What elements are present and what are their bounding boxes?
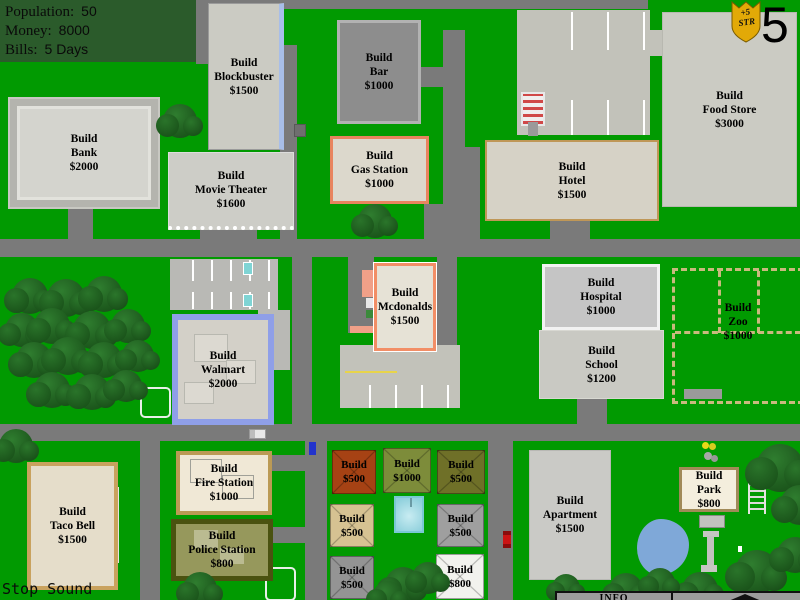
build-house-5-label: Build $500: [448, 512, 474, 540]
white-truck: [249, 429, 266, 439]
cart-return-icon: [243, 262, 253, 275]
trash-can-icon: [738, 546, 742, 552]
tree: [183, 572, 217, 600]
money-label: Money:: [5, 23, 52, 40]
red-car: [503, 531, 511, 548]
build-hospital-button[interactable]: Build Hospital $1000: [542, 264, 660, 330]
parking-lines: [175, 260, 275, 281]
stone-icon: [711, 455, 718, 462]
build-bar-button[interactable]: Build Bar $1000: [337, 20, 421, 124]
info-bar: INFO: [555, 591, 800, 600]
blue-car: [309, 442, 316, 455]
build-bank-button[interactable]: Build Bank $2000: [8, 97, 160, 209]
build-house-7-label: Build $800: [447, 563, 473, 591]
build-house-6-label: Build $500: [339, 564, 365, 592]
road: [437, 257, 457, 349]
money-value: 8000: [59, 22, 90, 38]
parking-lines: [175, 292, 275, 309]
road: [424, 204, 443, 240]
parking-lines: [345, 385, 455, 408]
bills-label: Bills:: [5, 42, 38, 59]
bills-value: 5 Days: [45, 41, 89, 57]
tree: [412, 562, 444, 594]
cart-return-icon: [243, 294, 253, 307]
seesaw-post: [707, 536, 714, 567]
build-food-store-label: Build Food Store $3000: [703, 89, 757, 131]
build-mcdonalds-label: Build Mcdonalds $1500: [378, 286, 432, 328]
build-taco-bell-label: Build Taco Bell $1500: [50, 505, 95, 547]
flower-icon: [702, 442, 709, 449]
mcdonalds-menu-board: [366, 298, 374, 308]
expand-panel-button[interactable]: [673, 593, 800, 600]
info-button[interactable]: INFO: [557, 593, 673, 600]
build-police-station-button[interactable]: Build Police Station $800: [171, 519, 273, 581]
build-school-button[interactable]: Build School $1200: [539, 330, 664, 399]
park-bench: [699, 515, 725, 528]
day-counter: 5: [761, 0, 789, 50]
road: [305, 441, 327, 600]
build-mcdonalds-button[interactable]: Build Mcdonalds $1500: [374, 263, 436, 351]
road: [450, 147, 480, 240]
population-value: 50: [81, 3, 97, 19]
road: [0, 239, 800, 257]
road: [577, 397, 607, 425]
build-house-5-button[interactable]: Build $500: [437, 504, 484, 547]
build-gas-station-label: Build Gas Station $1000: [351, 149, 408, 191]
dumpster: [294, 124, 306, 137]
build-park-button[interactable]: Build Park $800: [679, 467, 739, 512]
build-house-2-button[interactable]: Build $1000: [383, 448, 431, 493]
tree: [358, 204, 392, 238]
build-walmart-label: Build Walmart $2000: [201, 349, 245, 391]
build-school-label: Build School $1200: [585, 344, 618, 386]
build-house-3-button[interactable]: Build $500: [437, 450, 485, 494]
hotel-parking-sign: [521, 92, 545, 126]
build-movie-theater-label: Build Movie Theater $1600: [195, 169, 267, 211]
build-apartment-label: Build Apartment $1500: [543, 494, 597, 536]
parking-lines: [537, 12, 649, 50]
tree: [110, 370, 142, 402]
parking-connector: [648, 30, 662, 56]
build-house-3-label: Build $500: [448, 458, 474, 486]
build-house-1-button[interactable]: Build $500: [332, 450, 376, 494]
diving-board: [410, 498, 412, 507]
build-house-1-label: Build $500: [341, 458, 367, 486]
money-row: Money: 8000: [5, 22, 196, 41]
tree: [0, 429, 33, 463]
build-blockbuster-label: Build Blockbuster $1500: [214, 56, 273, 98]
road: [68, 205, 93, 241]
build-apartment-button[interactable]: Build Apartment $1500: [529, 450, 611, 580]
build-movie-theater-button[interactable]: Build Movie Theater $1600: [168, 152, 294, 230]
road: [140, 441, 160, 600]
bills-row: Bills: 5 Days: [5, 41, 196, 60]
tree: [122, 340, 154, 372]
tree: [756, 444, 800, 492]
build-bar-label: Build Bar $1000: [365, 51, 394, 93]
game-map: Build Blockbuster $1500 Build Bank $2000…: [0, 0, 800, 600]
swimming-pool: [394, 496, 424, 533]
stats-panel: Population: 50 Money: 8000 Bills: 5 Days: [0, 0, 196, 62]
build-house-2-label: Build $1000: [393, 457, 421, 485]
hotel-parking-sign-post: [528, 122, 538, 136]
road: [292, 257, 312, 425]
build-hotel-label: Build Hotel $1500: [558, 160, 587, 202]
build-bank-label: Build Bank $2000: [70, 132, 99, 174]
population-row: Population: 50: [5, 3, 196, 22]
build-police-station-label: Build Police Station $800: [188, 529, 255, 571]
stop-sound-button[interactable]: Stop Sound: [2, 580, 92, 598]
tree: [86, 276, 122, 312]
build-house-4-label: Build $500: [339, 512, 365, 540]
flower-icon: [709, 443, 716, 450]
population-label: Population:: [5, 4, 74, 21]
road: [488, 441, 513, 600]
build-fire-station-label: Build Fire Station $1000: [195, 462, 253, 504]
build-taco-bell-button[interactable]: Build Taco Bell $1500: [27, 462, 118, 590]
zoo-shed: [684, 389, 722, 399]
parking-lines: [537, 100, 649, 135]
build-hotel-button[interactable]: Build Hotel $1500: [485, 140, 659, 221]
up-arrow-icon: [726, 594, 764, 600]
build-zoo-label: Build Zoo $1000: [693, 301, 783, 343]
shield-text: +5 STR: [732, 5, 761, 28]
mcdonalds-drive-thru-curb: [350, 326, 376, 333]
build-hospital-label: Build Hospital $1000: [580, 276, 622, 318]
road: [0, 424, 800, 441]
build-walmart-button[interactable]: Build Walmart $2000: [172, 314, 274, 425]
parking-yellow-line: [345, 371, 397, 373]
build-house-4-button[interactable]: Build $500: [330, 504, 374, 547]
build-blockbuster-button[interactable]: Build Blockbuster $1500: [208, 3, 284, 150]
seesaw-cap: [701, 565, 717, 572]
build-park-label: Build Park $800: [696, 469, 723, 511]
tree: [111, 309, 145, 343]
build-gas-station-button[interactable]: Build Gas Station $1000: [330, 136, 429, 204]
build-zoo-button[interactable]: Build Zoo $1000: [672, 268, 800, 404]
tree: [163, 104, 197, 138]
tree: [34, 372, 70, 408]
strength-shield-icon: +5 STR: [731, 1, 761, 43]
build-fire-station-button[interactable]: Build Fire Station $1000: [176, 451, 272, 515]
mcdonalds-shrub: [366, 310, 374, 318]
pond: [637, 519, 689, 575]
tree: [777, 537, 800, 573]
